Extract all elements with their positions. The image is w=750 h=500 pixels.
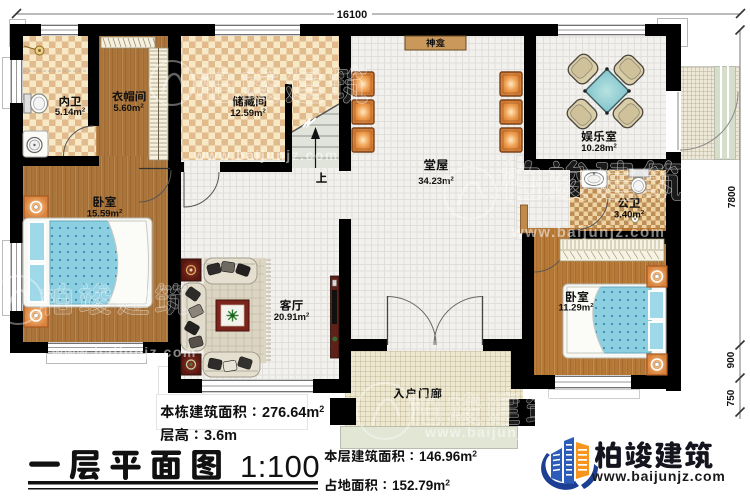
svg-text:146.96m2: 146.96m2: [419, 449, 477, 465]
svg-text:20.91m2: 20.91m2: [274, 312, 310, 323]
svg-text:3.6m: 3.6m: [204, 428, 237, 444]
svg-text:11.29m2: 11.29m2: [559, 303, 595, 314]
svg-text:1:100: 1:100: [240, 449, 320, 484]
svg-text:10.28m2: 10.28m2: [581, 143, 617, 154]
svg-text:16100: 16100: [337, 9, 368, 21]
svg-text:www.baijunjz.com: www.baijunjz.com: [424, 424, 570, 440]
svg-text:www.baijunjz.com: www.baijunjz.com: [591, 468, 726, 484]
svg-text:900: 900: [726, 351, 737, 368]
svg-text:www.baijunjz.com: www.baijunjz.com: [193, 147, 339, 163]
svg-text:276.64m2: 276.64m2: [262, 404, 324, 421]
svg-text:152.79m2: 152.79m2: [392, 478, 450, 494]
svg-text:5.60m2: 5.60m2: [113, 103, 144, 114]
svg-text:3.40m2: 3.40m2: [614, 210, 645, 221]
svg-text:5.14m2: 5.14m2: [55, 107, 86, 118]
svg-text:www.baijunjz.com: www.baijunjz.com: [511, 224, 665, 241]
svg-text:www.baijunjz.com: www.baijunjz.com: [51, 344, 197, 360]
svg-text:12.59m2: 12.59m2: [230, 108, 266, 119]
svg-text:750: 750: [726, 389, 737, 406]
svg-text:7800: 7800: [727, 185, 738, 208]
svg-text:15.59m2: 15.59m2: [87, 209, 123, 220]
